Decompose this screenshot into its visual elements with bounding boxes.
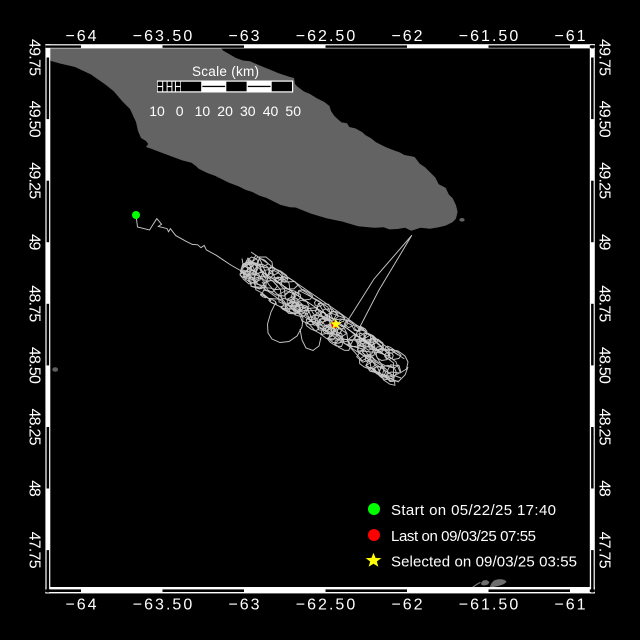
svg-text:−62: −62 (392, 597, 423, 614)
svg-text:−63.50: −63.50 (133, 28, 193, 45)
svg-text:48.75: 48.75 (596, 285, 613, 322)
svg-text:−61: −61 (555, 597, 586, 614)
svg-text:48.25: 48.25 (596, 409, 613, 446)
svg-text:49: 49 (26, 234, 43, 251)
svg-text:−63: −63 (229, 28, 260, 45)
svg-text:49: 49 (596, 234, 613, 251)
svg-text:40: 40 (263, 103, 279, 119)
svg-text:−63: −63 (229, 597, 260, 614)
svg-text:−61: −61 (555, 28, 586, 45)
svg-text:49.25: 49.25 (596, 162, 613, 199)
svg-text:−64: −64 (66, 28, 97, 45)
svg-text:−61.50: −61.50 (459, 28, 519, 45)
svg-text:48.25: 48.25 (26, 409, 43, 446)
svg-text:49.50: 49.50 (596, 101, 613, 138)
svg-text:10: 10 (195, 103, 211, 119)
svg-text:20: 20 (217, 103, 233, 119)
svg-text:49.75: 49.75 (26, 39, 43, 76)
svg-text:Start on 05/22/25 17:40: Start on 05/22/25 17:40 (391, 502, 556, 519)
svg-text:47.75: 47.75 (26, 532, 43, 569)
svg-text:0: 0 (176, 103, 184, 119)
svg-text:49.50: 49.50 (26, 101, 43, 138)
svg-text:49.25: 49.25 (26, 162, 43, 199)
svg-text:−63.50: −63.50 (133, 597, 193, 614)
svg-text:48: 48 (26, 480, 43, 497)
svg-text:50: 50 (285, 103, 301, 119)
svg-text:30: 30 (240, 103, 256, 119)
svg-text:−62: −62 (392, 28, 423, 45)
svg-text:−64: −64 (66, 597, 97, 614)
svg-text:−62.50: −62.50 (296, 28, 356, 45)
svg-text:48.75: 48.75 (26, 285, 43, 322)
svg-text:48: 48 (596, 480, 613, 497)
svg-text:Last on 09/03/25 07:55: Last on 09/03/25 07:55 (391, 528, 536, 545)
svg-text:48.50: 48.50 (596, 347, 613, 384)
svg-text:−62.50: −62.50 (296, 597, 356, 614)
svg-text:49.75: 49.75 (596, 39, 613, 76)
svg-text:10: 10 (149, 103, 165, 119)
svg-text:47.75: 47.75 (596, 532, 613, 569)
svg-text:Scale (km): Scale (km) (192, 64, 259, 79)
svg-text:48.50: 48.50 (26, 347, 43, 384)
svg-text:Selected on 09/03/25 03:55: Selected on 09/03/25 03:55 (391, 554, 577, 571)
svg-text:−61.50: −61.50 (459, 597, 519, 614)
